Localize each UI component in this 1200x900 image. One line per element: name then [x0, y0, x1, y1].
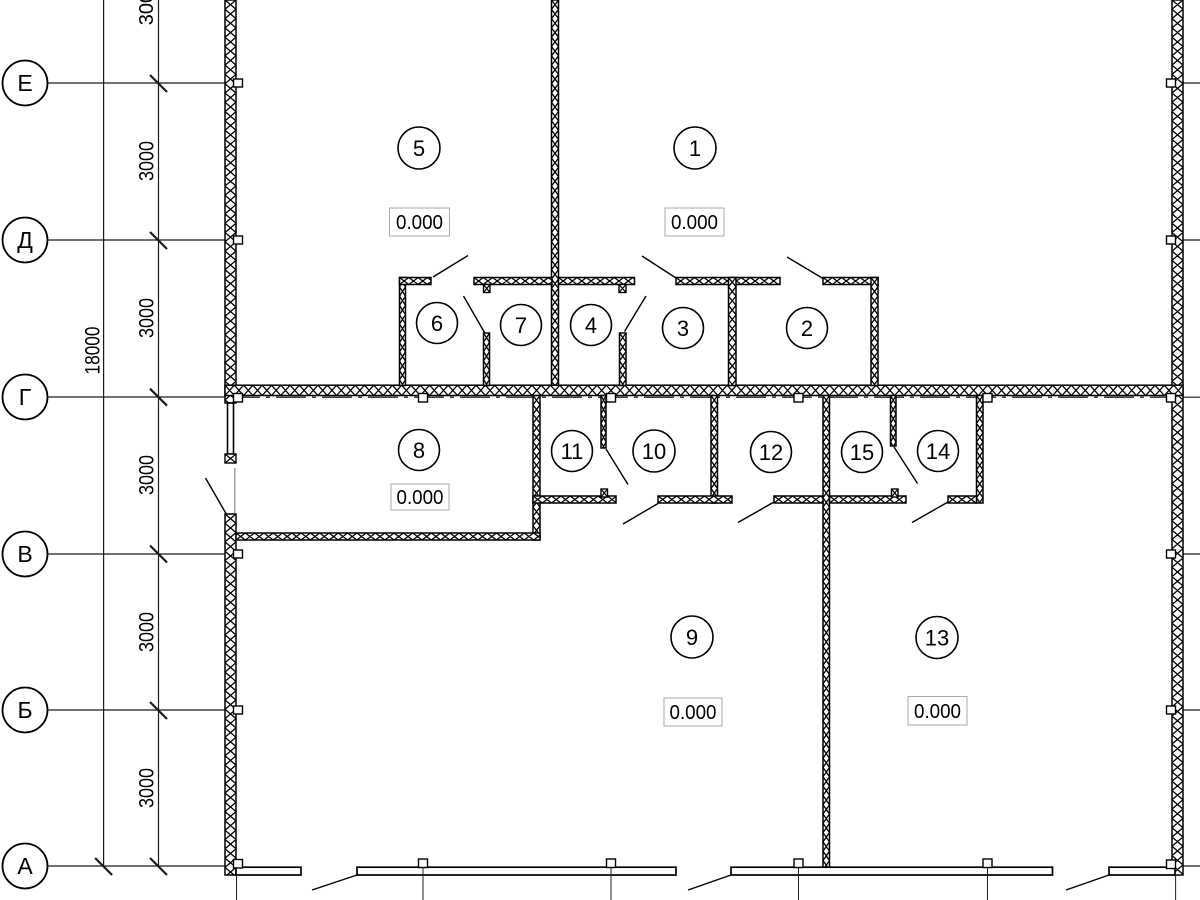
- svg-text:3000: 3000: [135, 768, 158, 808]
- svg-text:11: 11: [561, 439, 584, 464]
- svg-text:3000: 3000: [135, 455, 158, 495]
- svg-text:Е: Е: [17, 70, 32, 96]
- svg-text:15: 15: [850, 440, 874, 465]
- svg-text:7: 7: [515, 313, 527, 338]
- svg-text:Б: Б: [17, 697, 32, 723]
- svg-text:8: 8: [413, 438, 425, 463]
- svg-text:3: 3: [677, 316, 689, 341]
- svg-text:9: 9: [686, 625, 698, 650]
- svg-text:Д: Д: [17, 227, 33, 253]
- svg-text:4: 4: [585, 313, 597, 338]
- svg-text:0.000: 0.000: [671, 212, 718, 234]
- svg-text:14: 14: [926, 439, 950, 464]
- svg-text:А: А: [17, 853, 33, 879]
- svg-text:0.000: 0.000: [397, 487, 444, 509]
- svg-text:В: В: [17, 541, 32, 567]
- svg-text:0.000: 0.000: [914, 701, 961, 723]
- svg-text:0.000: 0.000: [670, 702, 717, 724]
- svg-text:13: 13: [925, 625, 949, 650]
- svg-text:0.000: 0.000: [396, 212, 443, 234]
- svg-text:6: 6: [431, 311, 443, 336]
- svg-text:5: 5: [413, 136, 425, 161]
- svg-text:3000: 3000: [135, 298, 158, 338]
- svg-text:10: 10: [642, 439, 666, 464]
- svg-text:1: 1: [689, 136, 701, 161]
- svg-text:2: 2: [801, 316, 813, 341]
- svg-text:Г: Г: [19, 384, 32, 410]
- svg-text:3000: 3000: [136, 0, 158, 25]
- svg-text:3000: 3000: [135, 612, 158, 652]
- svg-text:18000: 18000: [82, 327, 105, 375]
- svg-text:3000: 3000: [135, 141, 158, 181]
- svg-text:12: 12: [759, 440, 783, 465]
